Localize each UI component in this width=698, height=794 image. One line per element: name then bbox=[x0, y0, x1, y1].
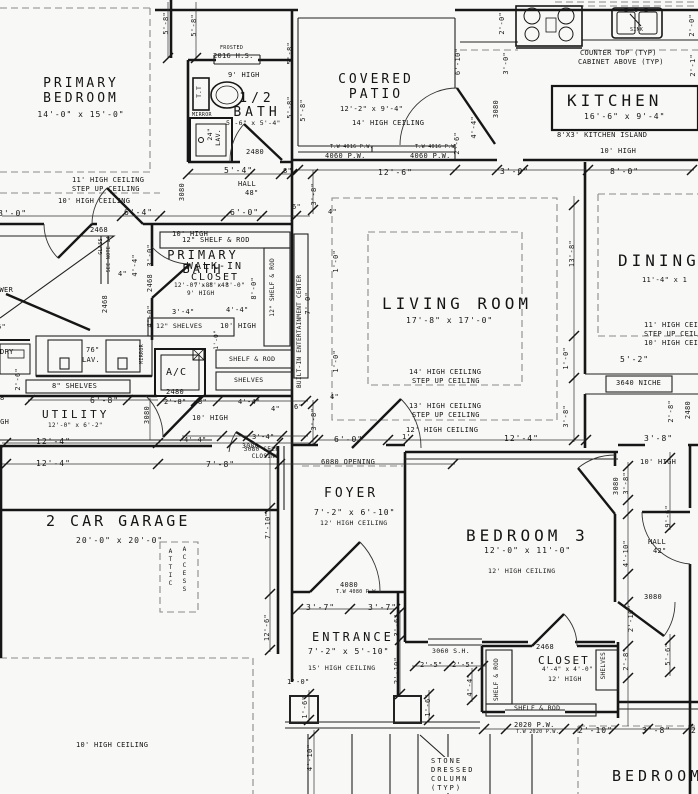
ceiling-note: 12' HIGH CEILING bbox=[406, 426, 478, 434]
dim: 4'-4" bbox=[184, 436, 207, 444]
opening-note: 6080 OPENING bbox=[321, 458, 375, 466]
dim: 8'-0" bbox=[250, 277, 258, 300]
dim: 1'-0" bbox=[562, 347, 570, 370]
door-number: 3080 bbox=[178, 183, 186, 201]
room-bedroom2: BEDROOM bbox=[612, 768, 698, 785]
shelf-note: 12" SHELF & ROD bbox=[182, 236, 250, 244]
lav-label: LAV. bbox=[215, 129, 222, 146]
shelf-note: 12" SHELF & ROD bbox=[270, 258, 277, 317]
ceiling-note: 12' HIGH CEILING bbox=[488, 568, 555, 575]
door-number: 3080 bbox=[644, 593, 662, 601]
room-dining: DINING bbox=[618, 252, 698, 270]
dim: 4'-4" bbox=[466, 674, 474, 697]
lav-size-label: 24" bbox=[207, 128, 214, 141]
dim: 2'-5" bbox=[452, 661, 475, 669]
ceiling-note: 14' HIGH CEILING bbox=[409, 368, 481, 376]
dim: 2'-10" bbox=[627, 605, 635, 632]
dim: 3'-8" bbox=[622, 472, 630, 495]
dim: 8" bbox=[283, 167, 292, 175]
dim: 2'-8" bbox=[667, 400, 675, 423]
dim: 7'-0" bbox=[304, 292, 312, 315]
door-number: 2468 bbox=[536, 643, 554, 651]
height-note: 9' HIGH bbox=[228, 71, 260, 79]
room-foyer-size: 7'-2" x 6'-10" bbox=[314, 508, 395, 517]
ceiling-note: 13' HIGH CEILING bbox=[409, 402, 481, 410]
dim: 5'-8" bbox=[162, 12, 170, 35]
cooktop-icon bbox=[516, 6, 582, 48]
dim: 2 bbox=[691, 726, 697, 735]
dim: 5'-8" bbox=[299, 99, 307, 122]
door-number: 4080 bbox=[340, 581, 358, 589]
cabinet-note: CABINET ABOVE (TYP) bbox=[578, 58, 664, 66]
dim: 4'-4" bbox=[131, 254, 139, 277]
room-laundry: LAUNDRY bbox=[0, 348, 14, 356]
height-note: 10' HIGH bbox=[192, 414, 228, 422]
dim: 4'-10" bbox=[622, 540, 630, 567]
lav-label: LAV. bbox=[82, 356, 100, 364]
room-kitchen: KITCHEN bbox=[567, 92, 662, 110]
door-number: 3080 bbox=[143, 406, 151, 424]
mirror-label: MIRROR bbox=[192, 113, 212, 119]
room-covered-patio: COVERED PATIO bbox=[328, 72, 424, 102]
room-kitchen-size: 16'-6" x 9'-4" bbox=[584, 112, 665, 121]
window-note: T.W 2020 P.W. bbox=[516, 730, 559, 736]
dim: 5'-8" bbox=[286, 42, 294, 65]
dim: 2'-6" bbox=[453, 132, 461, 155]
shelf-note: SHELF & ROD bbox=[229, 356, 275, 363]
dim: 3'-7" bbox=[306, 603, 335, 612]
attic-access-label: ACCESS bbox=[180, 546, 187, 594]
island-note: 8'X3' KITCHEN ISLAND bbox=[557, 131, 647, 139]
ceiling-note: STEP UP CEILING bbox=[412, 377, 480, 385]
dim: 3'-4" bbox=[172, 308, 195, 316]
room-entrance-size: 7'-2" x 5'-10" bbox=[308, 647, 389, 656]
dim: 5'-6" bbox=[664, 643, 672, 666]
doors bbox=[6, 88, 690, 646]
dim: 12'-6" bbox=[263, 614, 271, 641]
window-label: 4060 P.W. bbox=[325, 152, 366, 160]
dim: 2'-6" bbox=[14, 368, 22, 391]
dim: 13'-8" bbox=[568, 240, 576, 267]
dim: 6'-0" bbox=[334, 435, 363, 444]
ceiling-note: 10' HIGH CEILING bbox=[76, 741, 148, 749]
glass-note: SEE NOTE 14 bbox=[107, 236, 113, 272]
height-note: 10' HIGH bbox=[220, 322, 256, 330]
room-closet3-size: 4'-4" x 4'-0" bbox=[542, 667, 593, 674]
dim: 1'-0" bbox=[332, 350, 340, 373]
dim: 12'-6" bbox=[378, 168, 413, 177]
room-garage-size: 20'-0" x 20'-0" bbox=[76, 536, 163, 545]
stone-column-note: STONE DRESSED COLUMN (TYP) bbox=[431, 757, 487, 793]
dim: 2'-1" bbox=[689, 54, 697, 77]
dim: 4'-4" bbox=[226, 306, 249, 314]
dim: 4'-4" bbox=[238, 398, 261, 406]
ceiling-note: 10' HIGH CEILING bbox=[644, 339, 698, 347]
dim: 7'-8" bbox=[206, 460, 235, 469]
window-note: T.W 4080 P.W. bbox=[336, 590, 379, 596]
room-entrance: ENTRANCE bbox=[312, 631, 394, 645]
door-number: 2468 bbox=[146, 274, 154, 292]
ceiling-note: 15' HIGH CEILING bbox=[308, 665, 375, 672]
dim: 3'-8" bbox=[644, 434, 673, 443]
toilet-tank-label: T.T bbox=[197, 86, 204, 98]
door-number: 2480 bbox=[246, 148, 264, 156]
dim: 6'-4" bbox=[124, 208, 153, 217]
dim: 3'-8" bbox=[310, 183, 318, 206]
dim: 6'-10" bbox=[454, 48, 462, 75]
window-label: 2016 H.S. bbox=[213, 52, 254, 60]
dim: 6" bbox=[0, 323, 6, 331]
dim: 4'-4" bbox=[470, 116, 478, 139]
door-swings bbox=[44, 88, 690, 646]
dim: 2'-0" bbox=[498, 12, 506, 35]
dim: 8" bbox=[0, 394, 9, 402]
door-number: 3080 bbox=[612, 477, 620, 495]
attic-access-label: ATTIC bbox=[166, 548, 173, 588]
height-note: 10' HIGH bbox=[0, 418, 9, 426]
dim: 2'-10" bbox=[578, 726, 613, 735]
dim: 1'-0" bbox=[214, 330, 221, 350]
room-hall-right: HALL bbox=[648, 538, 666, 546]
room-living-room-size: 17'-8" x 17'-0" bbox=[406, 316, 493, 325]
door-leaves bbox=[6, 88, 690, 646]
ac-label: A/C bbox=[166, 367, 187, 379]
dim: 6'-0" bbox=[230, 208, 259, 217]
room-living-room: LIVING ROOM bbox=[382, 295, 532, 313]
dim: 1'-0" bbox=[287, 678, 310, 686]
shelf-note: SHELVES bbox=[601, 652, 608, 679]
window-label: 3060 S.H. bbox=[432, 648, 470, 655]
dim: 2'-5" bbox=[420, 661, 443, 669]
dim: 3'-7" bbox=[368, 603, 397, 612]
door-number: 3080 bbox=[492, 100, 500, 118]
shelf-note: SHELVES bbox=[234, 377, 264, 384]
dim: 1'-0" bbox=[332, 250, 340, 273]
room-hall-center-size: 48" bbox=[245, 189, 259, 197]
mirror-label: MIRROR bbox=[140, 344, 146, 364]
height-note: 10' HIGH bbox=[600, 147, 636, 155]
shelf-note: SHELF & ROD bbox=[494, 658, 501, 701]
counter-note: COUNTER TOP (TYP) bbox=[580, 49, 657, 57]
room-walk-in-closet: WALK-IN CLOSET bbox=[184, 261, 246, 283]
room-primary-bedroom-size: 14'-0" x 15'-0" bbox=[22, 110, 140, 119]
room-half-bath: 1/2 BATH bbox=[222, 92, 292, 120]
dim: 8'-0" bbox=[610, 167, 639, 176]
dim: 12'-4" bbox=[36, 459, 71, 468]
ceiling-note: STEP UP CEILING bbox=[72, 185, 140, 193]
dim: 4" bbox=[328, 208, 337, 216]
door-number: 2468 bbox=[101, 295, 109, 313]
dim: 12'-4" bbox=[504, 434, 539, 443]
dim: 6" bbox=[294, 403, 303, 411]
room-bedroom3-size: 12'-0" x 11'-0" bbox=[484, 546, 571, 555]
window-note: FROSTED bbox=[220, 46, 243, 52]
door-number: 2480 bbox=[166, 388, 184, 396]
dim: 5'-2" bbox=[620, 355, 649, 364]
dim: 4" bbox=[330, 393, 339, 401]
dim: 2'-0" bbox=[688, 14, 696, 37]
room-primary-bedroom: PRIMARY BEDROOM bbox=[22, 76, 140, 106]
dim: 2'-8" bbox=[622, 648, 630, 671]
room-half-bath-size: 5'-6" x 5'-4" bbox=[226, 120, 281, 127]
ceiling-note: STEP UP CEILING bbox=[644, 330, 698, 338]
room-shower: SHOWER bbox=[0, 286, 13, 294]
dim: 4" bbox=[118, 270, 127, 278]
room-garage: 2 CAR GARAGE bbox=[46, 513, 190, 530]
door-number: 2480 bbox=[684, 401, 692, 419]
room-utility-size: 12'-0" x 6'-2" bbox=[48, 423, 103, 430]
niche-label: 3640 NICHE bbox=[616, 379, 661, 387]
glass-note: GLASS bbox=[99, 238, 105, 255]
dim: 2'-8" bbox=[164, 398, 187, 406]
room-foyer: FOYER bbox=[324, 487, 378, 502]
dim: 1'-6" bbox=[301, 696, 309, 719]
room-utility: UTILITY bbox=[42, 409, 109, 422]
dim: 3'-6" bbox=[393, 614, 401, 637]
dim: 5'-4" bbox=[224, 166, 253, 175]
dim: 4" bbox=[271, 405, 280, 413]
window-note: T.W 4016 P.W. bbox=[415, 145, 458, 151]
dim: 12'-4" bbox=[36, 437, 71, 446]
builtin-note: BUILT-IN ENTERTAINMENT CENTER bbox=[297, 238, 304, 388]
window-note: T.W 4016 P.W. bbox=[330, 145, 373, 151]
ceiling-note: 10' HIGH CEILING bbox=[58, 197, 130, 205]
room-walk-in-closet-size: 7'-8" x 8'-0" bbox=[194, 283, 245, 290]
dim: 3'-8" bbox=[310, 408, 318, 431]
dim: 3'-0" bbox=[146, 244, 154, 267]
window-label: 4060 P.W. bbox=[410, 152, 451, 160]
ceiling-note: STEP UP CEILING bbox=[412, 411, 480, 419]
shelf-note: SHELF & ROD bbox=[514, 705, 560, 712]
dim: 4'-0" bbox=[146, 305, 154, 328]
room-dining-size: 11'-4" x 1 bbox=[642, 276, 687, 284]
dim: 6'-8" bbox=[90, 396, 119, 405]
dim: 3'-0" bbox=[500, 167, 529, 176]
height-note: 10' HIGH bbox=[640, 458, 676, 466]
ceiling-note: 11' HIGH CEILING bbox=[72, 176, 144, 184]
dim: 7'-10" bbox=[264, 512, 272, 539]
height-note: 9' HIGH bbox=[187, 291, 214, 298]
shelves-note: 8" SHELVES bbox=[52, 382, 97, 390]
ceiling-note: 12' HIGH CEILING bbox=[320, 520, 387, 527]
dim: 8" bbox=[198, 398, 207, 406]
dim: 3'-8" bbox=[562, 405, 570, 428]
dim: 9'-6" bbox=[664, 505, 672, 528]
dim: 2'-10" bbox=[393, 657, 401, 684]
dim: 3'-4" bbox=[252, 433, 275, 441]
room-bedroom3: BEDROOM 3 bbox=[466, 527, 589, 545]
dim: 4'-10" bbox=[306, 744, 314, 771]
room-hall-center: HALL bbox=[238, 180, 256, 188]
window-label: 2020 P.W. bbox=[514, 721, 555, 729]
dim: 3'-8" bbox=[642, 726, 671, 735]
floor-plan: PRIMARY BEDROOM 14'-0" x 15'-0" 11' HIGH… bbox=[0, 0, 698, 794]
shelf-note: 12" SHELVES bbox=[156, 323, 202, 330]
lav-size-label: 76" bbox=[86, 346, 100, 354]
dim: 1' bbox=[402, 433, 411, 441]
sink-label: SINK bbox=[630, 28, 643, 34]
ceiling-note: 11' HIGH CEILING bbox=[644, 321, 698, 329]
dim: 1'-6" bbox=[424, 694, 432, 717]
dim: 3'-0" bbox=[502, 52, 510, 75]
room-covered-patio-size: 12'-2" x 9'-4" bbox=[340, 105, 403, 113]
room-hall-right-size: 42" bbox=[653, 547, 667, 555]
dim: 8'-0" bbox=[0, 209, 27, 218]
dim: 5'-8" bbox=[190, 14, 198, 37]
door-note-self-closing: 3080 SELF CLOSING bbox=[233, 446, 279, 460]
height-note: 12' HIGH bbox=[548, 676, 582, 683]
door-number: 2468 bbox=[90, 226, 108, 234]
dim: 6" bbox=[292, 203, 301, 211]
ceiling-note: 14' HIGH CEILING bbox=[352, 119, 424, 127]
